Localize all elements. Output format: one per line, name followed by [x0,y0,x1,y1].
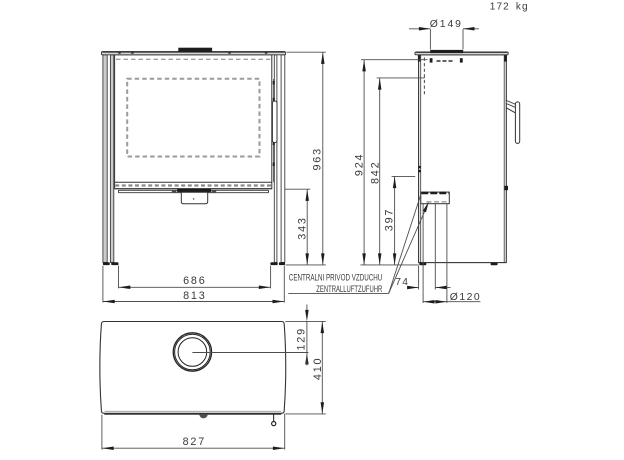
svg-text:397: 397 [384,208,396,231]
svg-text:827: 827 [183,436,206,448]
svg-text:Ø120: Ø120 [450,292,481,303]
svg-text:963: 963 [312,147,324,170]
svg-text:Ø149: Ø149 [430,19,463,30]
svg-text:74: 74 [395,277,409,288]
svg-text:813: 813 [183,290,206,302]
svg-text:172 kg: 172 kg [490,2,529,13]
svg-text:129: 129 [296,327,308,350]
svg-text:924: 924 [354,153,366,176]
svg-text:ZENTRALLUFTZUFUHR: ZENTRALLUFTZUFUHR [316,284,382,294]
svg-text:CENTRALNI PRIVOD VZDUCHU: CENTRALNI PRIVOD VZDUCHU [289,273,383,283]
svg-text:343: 343 [296,216,308,239]
svg-text:410: 410 [312,357,324,380]
svg-text:686: 686 [183,275,206,287]
svg-text:842: 842 [369,161,381,184]
